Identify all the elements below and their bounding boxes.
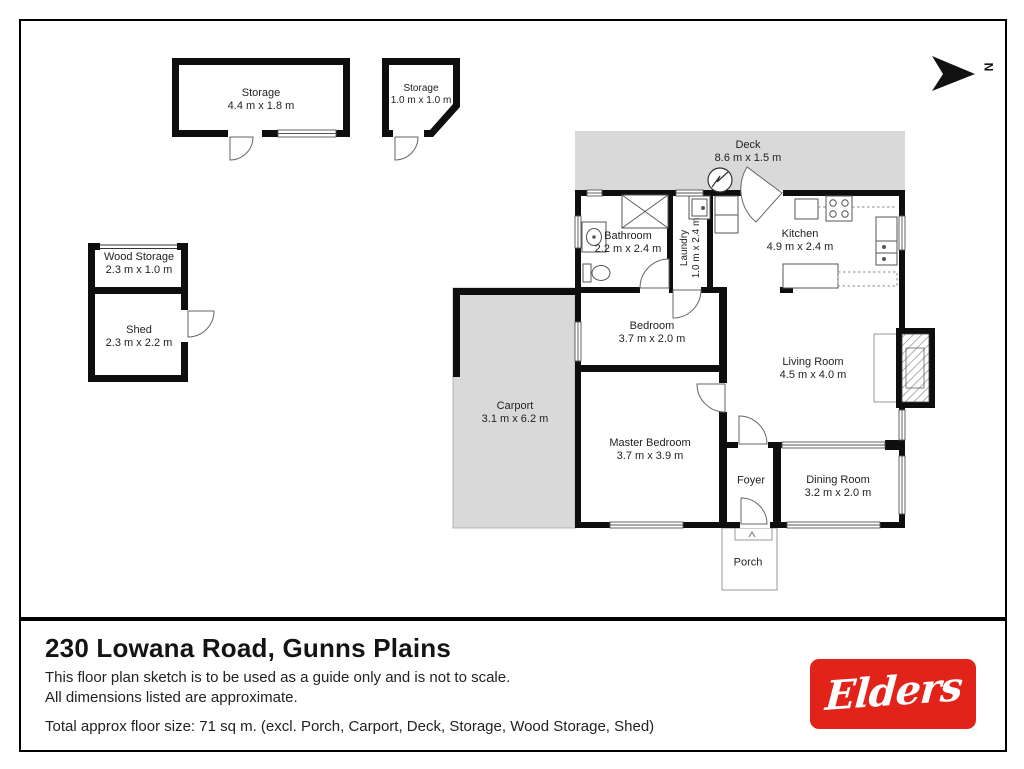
elders-logo-text: Elders <box>823 663 963 726</box>
north-arrow-icon <box>932 56 975 91</box>
north-label: N <box>981 63 995 72</box>
room-label-wood-storage: Wood Storage 2.3 m x 1.0 m <box>104 251 174 277</box>
bathroom-door-arc <box>640 259 669 288</box>
room-label-bedroom: Bedroom 3.7 m x 2.0 m <box>619 320 686 346</box>
door-arc <box>188 311 214 337</box>
room-label-bathroom: Bathroom 2.2 m x 2.4 m <box>595 230 662 256</box>
stove <box>826 196 852 221</box>
room-label-master-bedroom: Master Bedroom 3.7 m x 3.9 m <box>609 437 690 463</box>
room-label-storage-small: Storage 1.0 m x 1.0 m <box>391 83 452 107</box>
room-label-carport: Carport 3.1 m x 6.2 m <box>482 400 549 426</box>
room-label-dining-room: Dining Room 3.2 m x 2.0 m <box>805 474 872 500</box>
footer-divider <box>19 617 1007 621</box>
total-floor-size: Total approx floor size: 71 sq m. (excl.… <box>45 718 654 735</box>
front-door-arc <box>741 498 767 524</box>
living-room-door-arc <box>739 416 767 444</box>
room-label-porch: Porch <box>734 557 763 570</box>
deck-hot-water-unit <box>708 168 732 192</box>
elders-logo: Elders <box>810 659 976 729</box>
master-bedroom-door-arc <box>697 384 725 412</box>
disclaimer-line-2: All dimensions listed are approximate. <box>45 689 298 706</box>
room-label-laundry: Laundry 1.0 m x 2.4 m <box>679 218 703 279</box>
room-label-deck: Deck 8.6 m x 1.5 m <box>715 139 782 165</box>
fireplace <box>874 328 935 408</box>
door-arc <box>395 137 418 160</box>
room-label-shed: Shed 2.3 m x 2.2 m <box>106 324 173 350</box>
storage-small-outline <box>382 58 460 160</box>
room-label-foyer: Foyer <box>737 475 765 488</box>
door-arc <box>230 137 253 160</box>
laundry-tub <box>689 196 710 219</box>
room-label-storage-large: Storage 4.4 m x 1.8 m <box>228 87 295 113</box>
floorplan-page: N Storage 4.4 m x 1.8 m Storage 1.0 m x … <box>0 0 1024 769</box>
room-label-kitchen: Kitchen 4.9 m x 2.4 m <box>767 228 834 254</box>
laundry-door-arc <box>673 290 701 318</box>
disclaimer-line-1: This floor plan sketch is to be used as … <box>45 669 510 686</box>
room-label-living-room: Living Room 4.5 m x 4.0 m <box>780 356 847 382</box>
property-address-title: 230 Lowana Road, Gunns Plains <box>45 633 451 664</box>
